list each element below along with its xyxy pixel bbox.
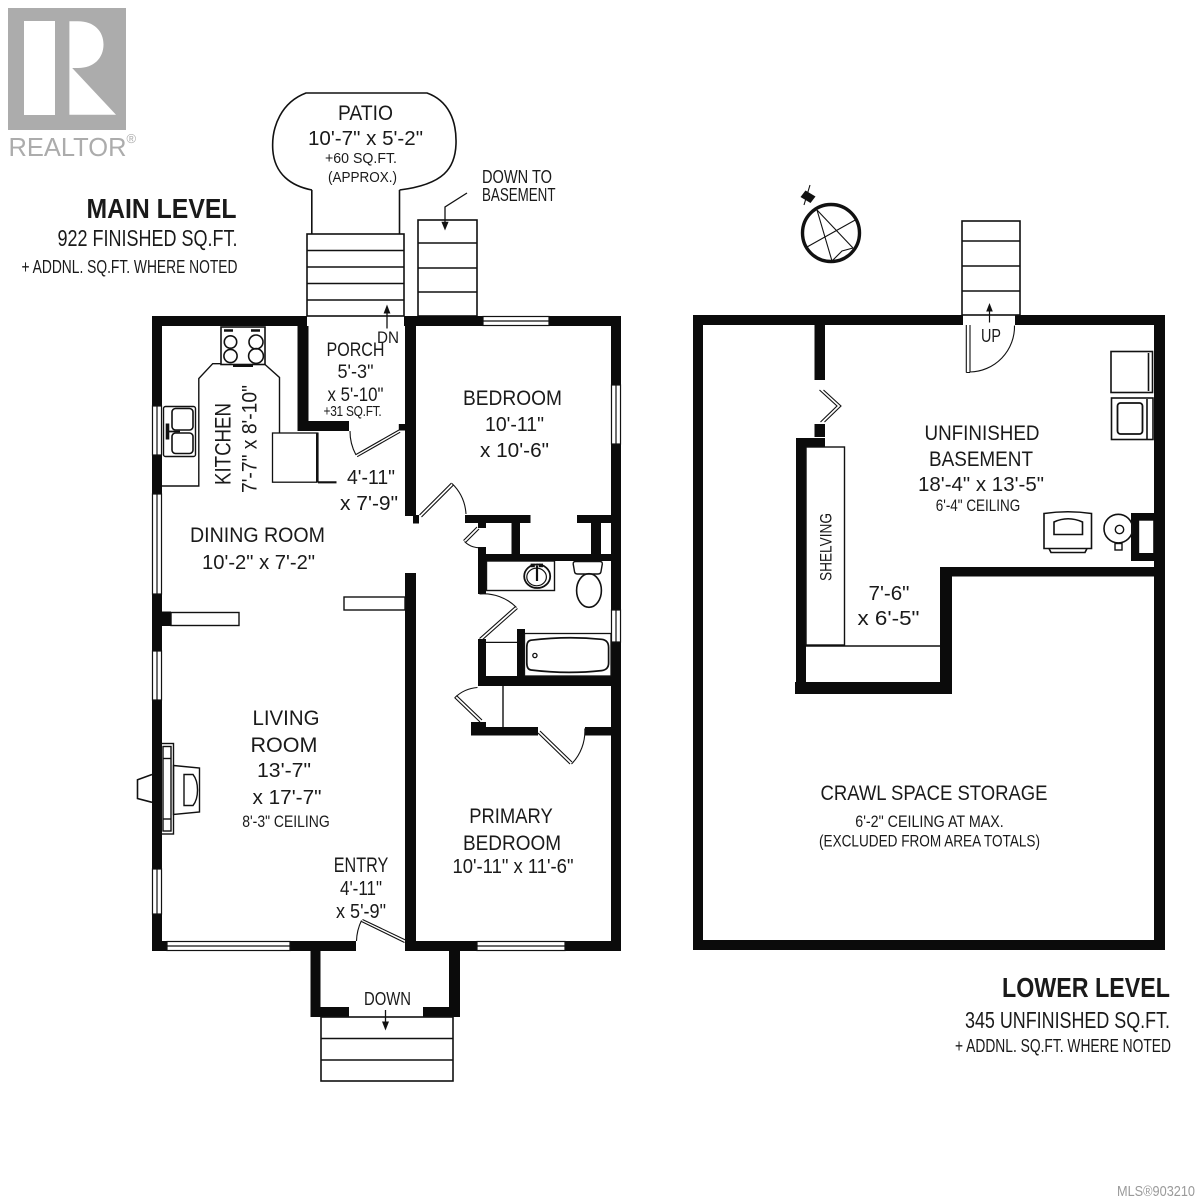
svg-text:7'-7" x 8'-10": 7'-7" x 8'-10" (239, 385, 262, 493)
svg-text:6'-4" CEILING: 6'-4" CEILING (936, 497, 1021, 515)
svg-text:BEDROOM: BEDROOM (463, 832, 561, 855)
svg-text:REALTOR: REALTOR (9, 134, 127, 162)
svg-text:+31 SQ.FT.: +31 SQ.FT. (324, 404, 382, 420)
svg-text:x 5'-10": x 5'-10" (328, 384, 384, 406)
svg-text:SHELVING: SHELVING (817, 513, 836, 581)
svg-text:DOWN: DOWN (364, 989, 411, 1009)
svg-text:13'-7": 13'-7" (257, 759, 311, 782)
svg-text:(APPROX.): (APPROX.) (328, 170, 397, 186)
svg-text:x 5'-9": x 5'-9" (336, 900, 386, 923)
svg-text:LOWER LEVEL: LOWER LEVEL (1002, 972, 1170, 1003)
svg-text:x 6'-5": x 6'-5" (858, 607, 920, 630)
svg-text:x 10'-6": x 10'-6" (480, 439, 549, 462)
svg-text:+60 SQ.FT.: +60 SQ.FT. (325, 151, 397, 167)
svg-text:10'-11" x 11'-6": 10'-11" x 11'-6" (453, 855, 574, 878)
svg-text:MLS®903210: MLS®903210 (1117, 1183, 1195, 1200)
svg-text:10'-7" x 5'-2": 10'-7" x 5'-2" (308, 127, 423, 150)
svg-text:ROOM: ROOM (251, 734, 318, 757)
svg-text:KITCHEN: KITCHEN (211, 403, 236, 485)
svg-text:BEDROOM: BEDROOM (463, 387, 562, 410)
svg-text:DINING ROOM: DINING ROOM (190, 524, 325, 547)
svg-text:(EXCLUDED FROM AREA TOTALS): (EXCLUDED FROM AREA TOTALS) (819, 833, 1040, 851)
svg-text:+ ADDNL. SQ.FT. WHERE NOTED: + ADDNL. SQ.FT. WHERE NOTED (955, 1035, 1171, 1056)
svg-text:+ ADDNL. SQ.FT. WHERE NOTED: + ADDNL. SQ.FT. WHERE NOTED (22, 256, 238, 277)
svg-text:922 FINISHED SQ.FT.: 922 FINISHED SQ.FT. (58, 225, 238, 251)
svg-text:8'-3" CEILING: 8'-3" CEILING (242, 813, 330, 831)
svg-text:4'-11": 4'-11" (347, 466, 395, 489)
svg-text:6'-2" CEILING AT MAX.: 6'-2" CEILING AT MAX. (855, 813, 1004, 831)
svg-text:18'-4" x 13'-5": 18'-4" x 13'-5" (918, 473, 1044, 496)
svg-text:4'-11": 4'-11" (340, 877, 382, 900)
svg-text:PRIMARY: PRIMARY (469, 805, 553, 828)
svg-text:CRAWL SPACE STORAGE: CRAWL SPACE STORAGE (821, 782, 1048, 805)
svg-text:PATIO: PATIO (338, 102, 393, 125)
svg-text:BASEMENT: BASEMENT (929, 448, 1033, 471)
svg-text:345 UNFINISHED SQ.FT.: 345 UNFINISHED SQ.FT. (965, 1007, 1170, 1033)
svg-text:MAIN LEVEL: MAIN LEVEL (87, 193, 237, 224)
svg-text:LIVING: LIVING (253, 707, 320, 730)
svg-text:7'-6": 7'-6" (869, 582, 910, 605)
svg-text:ENTRY: ENTRY (334, 854, 389, 877)
svg-text:UNFINISHED: UNFINISHED (925, 422, 1040, 445)
svg-text:BASEMENT: BASEMENT (482, 184, 556, 205)
svg-text:5'-3": 5'-3" (338, 361, 374, 383)
svg-text:x 17'-7": x 17'-7" (253, 786, 322, 809)
svg-text:10'-2" x 7'-2": 10'-2" x 7'-2" (202, 551, 315, 574)
svg-text:®: ® (127, 131, 137, 146)
svg-text:PORCH: PORCH (327, 339, 385, 361)
svg-text:x 7'-9": x 7'-9" (340, 492, 398, 515)
svg-text:UP: UP (981, 326, 1001, 346)
svg-text:10'-11": 10'-11" (485, 413, 544, 436)
